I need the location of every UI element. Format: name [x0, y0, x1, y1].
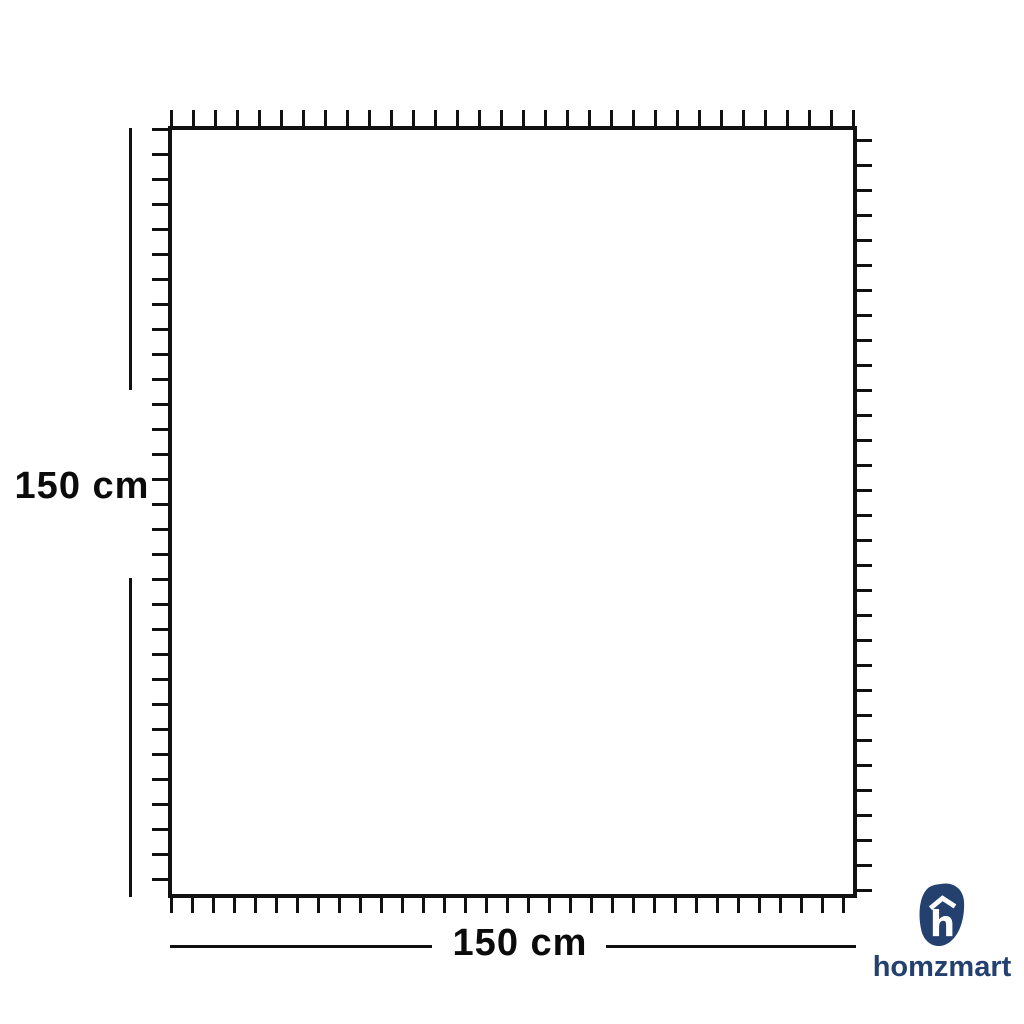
- height-dimension-line-lower: [129, 578, 132, 897]
- width-dimension-line-left: [170, 945, 432, 948]
- fringe-ticks-bottom: [170, 898, 857, 913]
- product-outline: [168, 126, 857, 898]
- width-dimension-label: 150 cm: [450, 920, 590, 966]
- homzmart-logo: h homzmart: [872, 882, 1012, 986]
- fringe-ticks-left: [152, 128, 169, 896]
- fringe-ticks-right: [856, 139, 872, 895]
- fringe-ticks-top: [170, 110, 855, 127]
- product-dimension-diagram: 150 cm 150 cm h homzmart: [0, 0, 1024, 1024]
- homzmart-logo-icon: h: [918, 882, 966, 947]
- logo-monogram-letter: h: [930, 904, 955, 945]
- homzmart-wordmark: homzmart: [872, 953, 1012, 982]
- height-dimension-label: 150 cm: [8, 463, 156, 509]
- height-dimension-line-upper: [129, 128, 132, 390]
- width-dimension-line-right: [606, 945, 856, 948]
